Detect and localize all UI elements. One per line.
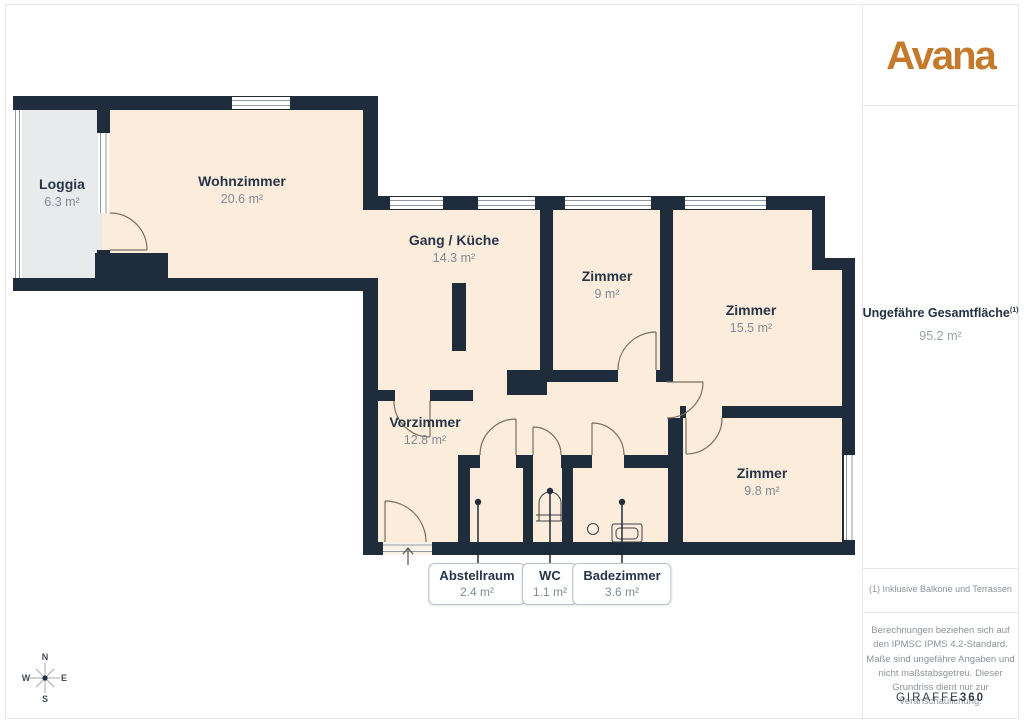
sidebar-divider-2 — [862, 568, 1019, 569]
compass-south-label: S — [42, 694, 48, 704]
total-area-value: 95.2 m² — [862, 329, 1019, 343]
sidebar-divider-1 — [862, 105, 1019, 106]
room-label-vorzimmer: Vorzimmer 12.8 m² — [389, 414, 460, 448]
sidebar-divider-3 — [862, 612, 1019, 613]
callout-badezimmer: Badezimmer 3.6 m² — [572, 563, 671, 605]
room-label-gang-kueche: Gang / Küche 14.3 m² — [409, 232, 499, 266]
room-fills — [18, 108, 848, 545]
room-label-wohnzimmer: Wohnzimmer 20.6 m² — [198, 173, 286, 207]
room-label-zimmer-9: Zimmer 9 m² — [582, 268, 633, 302]
total-area-footnote-marker: (1) — [1010, 307, 1019, 314]
brand-logo: Avana — [862, 34, 1019, 79]
room-label-zimmer-9-8: Zimmer 9.8 m² — [737, 465, 788, 499]
total-area-block: Ungefähre Gesamtfläche(1) 95.2 m² — [862, 306, 1019, 343]
callout-wc: WC 1.1 m² — [522, 563, 578, 605]
total-area-label: Ungefähre Gesamtfläche(1) — [862, 306, 1019, 320]
floor-plan-page: Loggia 6.3 m² Wohnzimmer 20.6 m² Gang / … — [0, 0, 1024, 724]
floor-plan-svg — [0, 0, 1024, 724]
giraffe360-credit: GIRAFFE360 — [862, 692, 1019, 704]
compass-north-label: N — [42, 652, 49, 662]
compass-east-label: E — [61, 673, 67, 683]
compass-west-label: W — [22, 673, 31, 683]
room-label-zimmer-15-5: Zimmer 15.5 m² — [726, 302, 777, 336]
compass-icon — [30, 663, 60, 693]
callout-abstellraum: Abstellraum 2.4 m² — [428, 563, 525, 605]
room-label-loggia: Loggia 6.3 m² — [39, 176, 85, 210]
footnote: (1) Inklusive Balkone und Terrassen — [862, 584, 1019, 594]
